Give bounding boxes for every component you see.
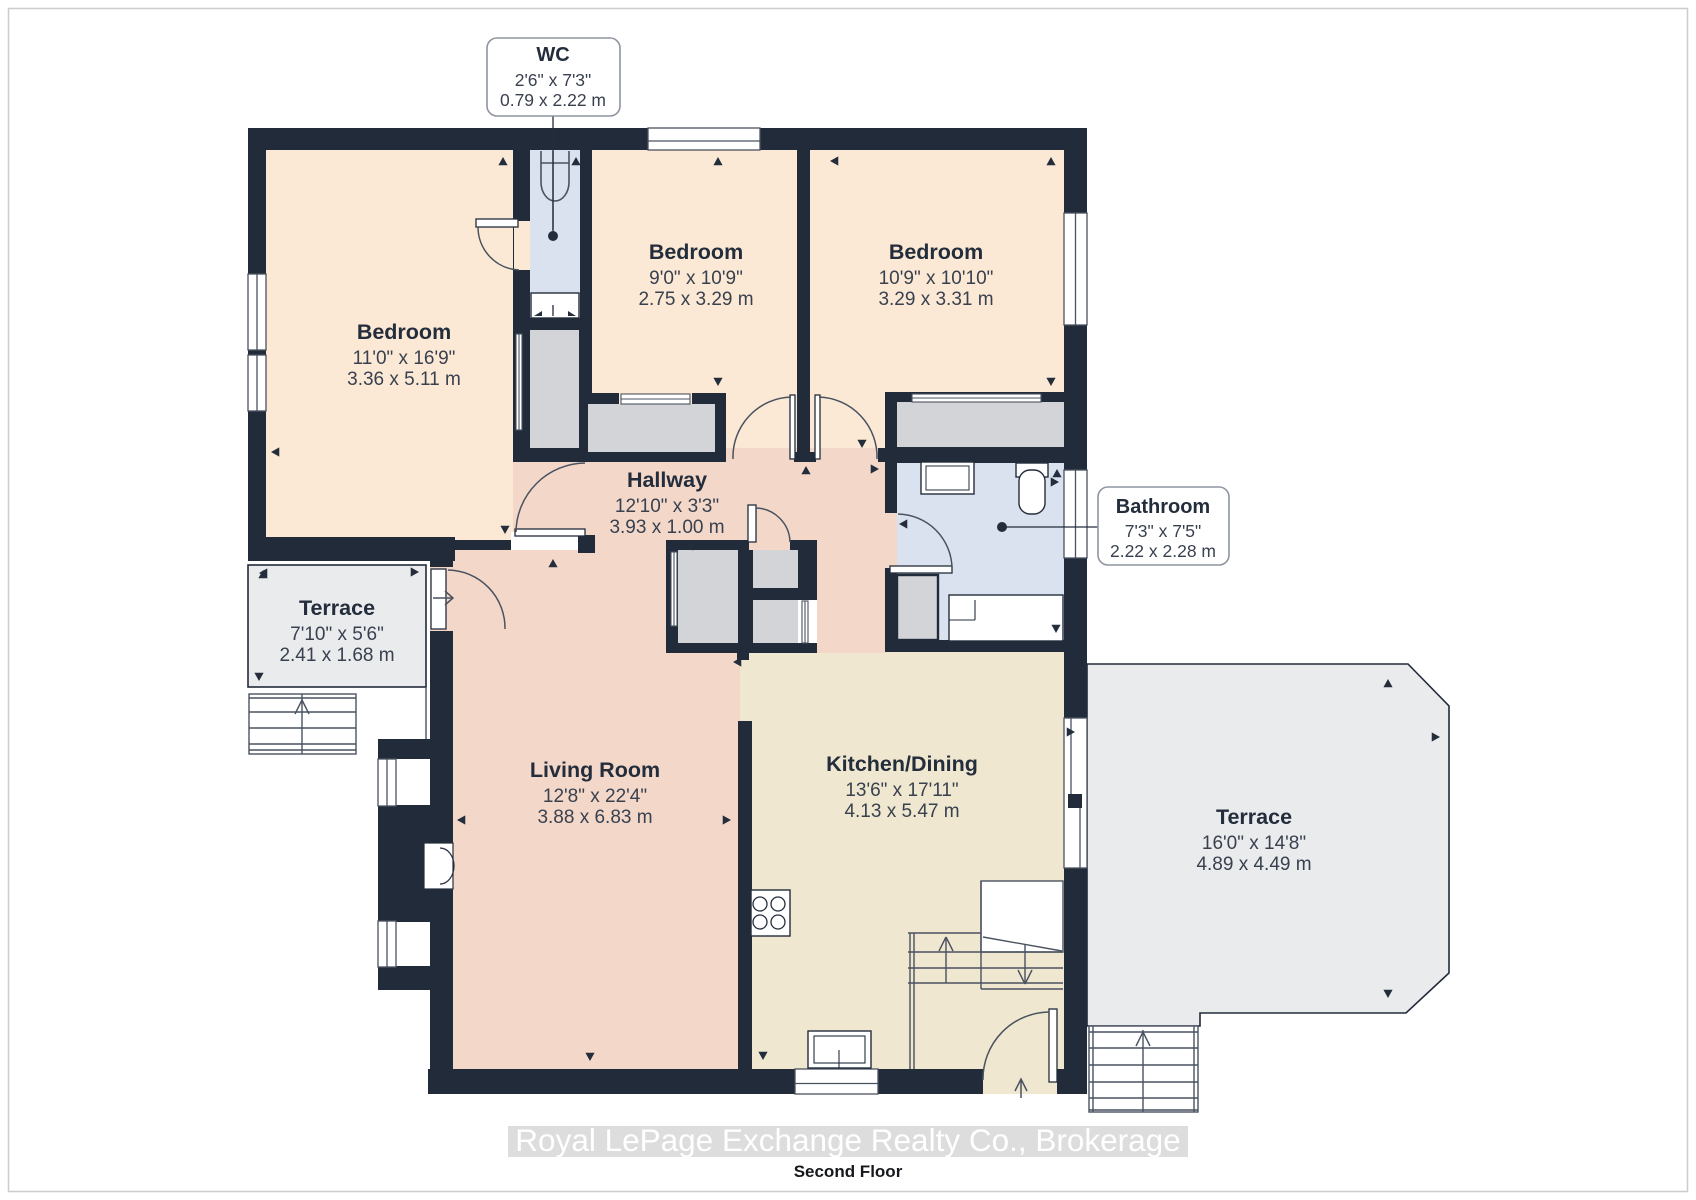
svg-text:Hallway: Hallway — [627, 468, 707, 492]
svg-text:3.36 x 5.11 m: 3.36 x 5.11 m — [347, 369, 461, 390]
svg-text:0.79 x 2.22 m: 0.79 x 2.22 m — [500, 90, 606, 110]
svg-text:10'9" x 10'10": 10'9" x 10'10" — [879, 268, 994, 289]
svg-text:Bedroom: Bedroom — [649, 240, 743, 264]
svg-text:2.22 x 2.28 m: 2.22 x 2.28 m — [1110, 541, 1216, 561]
svg-text:2'6" x 7'3": 2'6" x 7'3" — [515, 70, 592, 90]
svg-text:Living Room: Living Room — [530, 758, 660, 782]
svg-text:11'0" x 16'9": 11'0" x 16'9" — [353, 348, 456, 369]
svg-text:2.41 x 1.68 m: 2.41 x 1.68 m — [279, 645, 394, 666]
svg-text:Second Floor: Second Floor — [794, 1162, 903, 1181]
svg-text:Bedroom: Bedroom — [889, 240, 983, 264]
svg-text:12'10" x 3'3": 12'10" x 3'3" — [615, 496, 719, 517]
svg-text:WC: WC — [536, 44, 569, 66]
svg-text:7'3" x 7'5": 7'3" x 7'5" — [1125, 521, 1202, 541]
svg-text:3.88 x 6.83 m: 3.88 x 6.83 m — [537, 807, 652, 828]
svg-text:Terrace: Terrace — [299, 596, 375, 620]
svg-text:Kitchen/Dining: Kitchen/Dining — [826, 752, 978, 776]
svg-text:12'8" x 22'4": 12'8" x 22'4" — [543, 786, 647, 807]
svg-text:4.13 x 5.47 m: 4.13 x 5.47 m — [844, 801, 959, 822]
svg-text:3.93 x 1.00 m: 3.93 x 1.00 m — [609, 517, 724, 538]
svg-text:13'6" x 17'11": 13'6" x 17'11" — [845, 780, 958, 801]
svg-text:Bathroom: Bathroom — [1116, 496, 1210, 518]
svg-text:Terrace: Terrace — [1216, 805, 1292, 829]
svg-text:Royal LePage Exchange Realty C: Royal LePage Exchange Realty Co., Broker… — [515, 1122, 1180, 1158]
svg-text:Bedroom: Bedroom — [357, 320, 451, 344]
svg-text:16'0" x 14'8": 16'0" x 14'8" — [1202, 833, 1306, 854]
svg-text:2.75 x 3.29 m: 2.75 x 3.29 m — [638, 289, 753, 310]
svg-text:7'10" x 5'6": 7'10" x 5'6" — [290, 624, 384, 645]
svg-text:4.89 x 4.49 m: 4.89 x 4.49 m — [1196, 854, 1311, 875]
svg-text:9'0" x 10'9": 9'0" x 10'9" — [649, 268, 743, 289]
svg-text:3.29 x 3.31 m: 3.29 x 3.31 m — [878, 289, 993, 310]
